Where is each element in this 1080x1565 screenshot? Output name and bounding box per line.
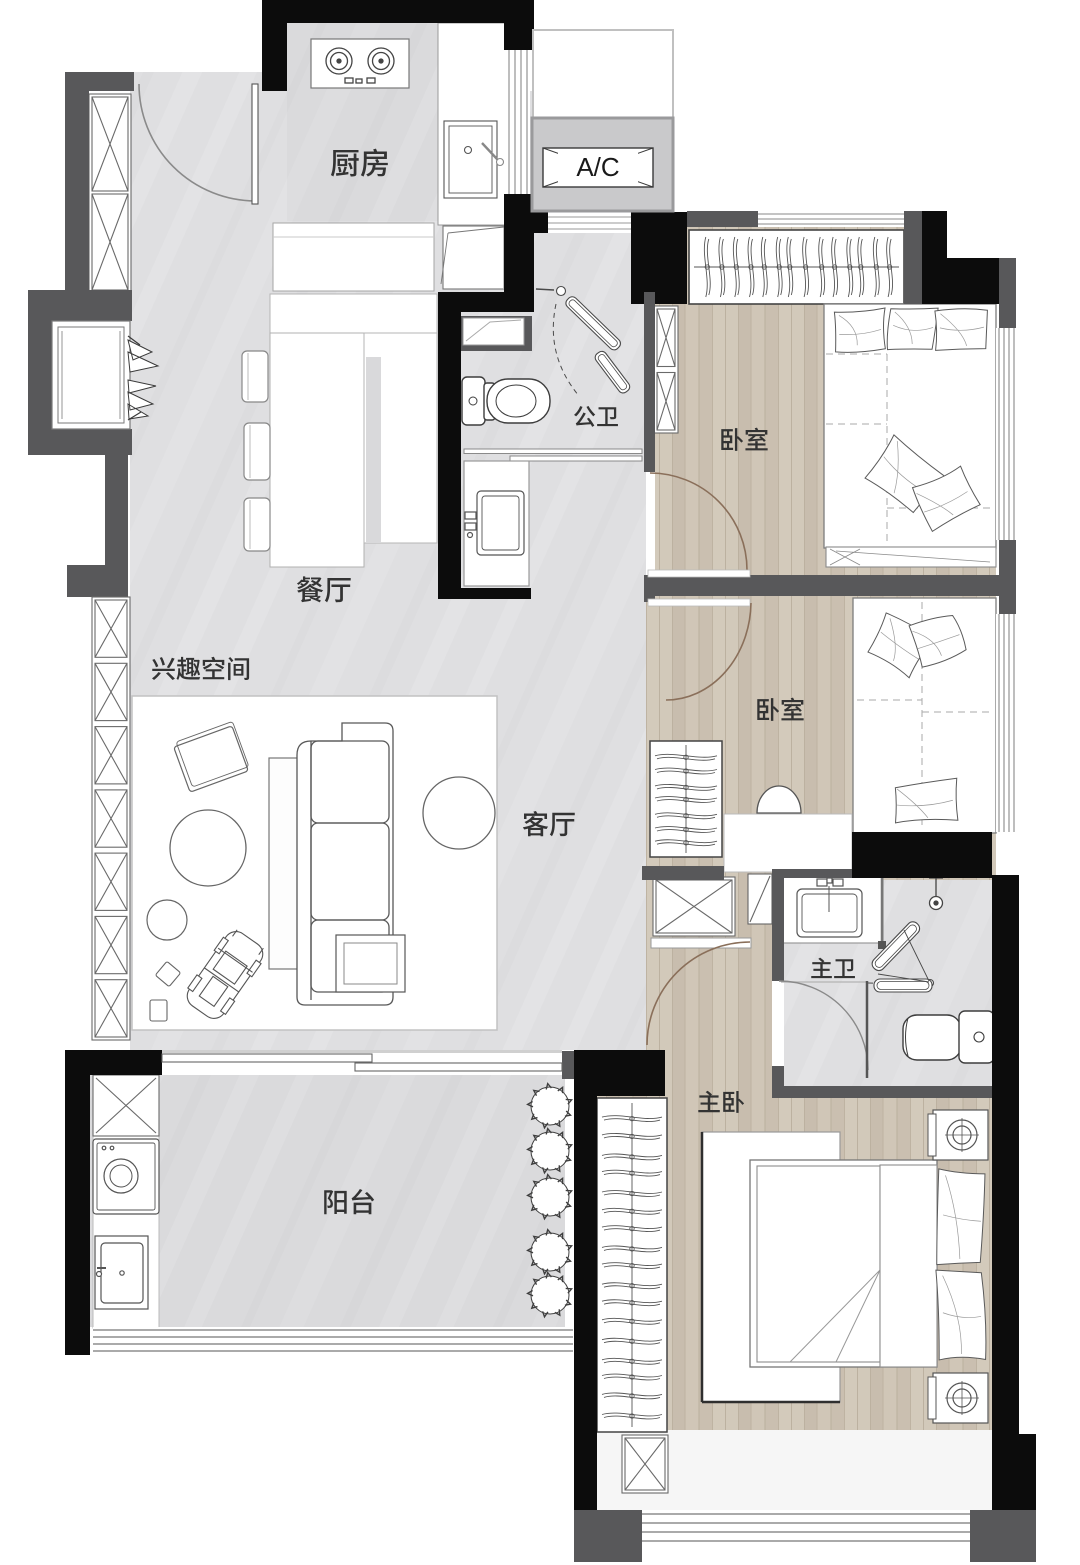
svg-text:A/C: A/C <box>576 152 619 182</box>
